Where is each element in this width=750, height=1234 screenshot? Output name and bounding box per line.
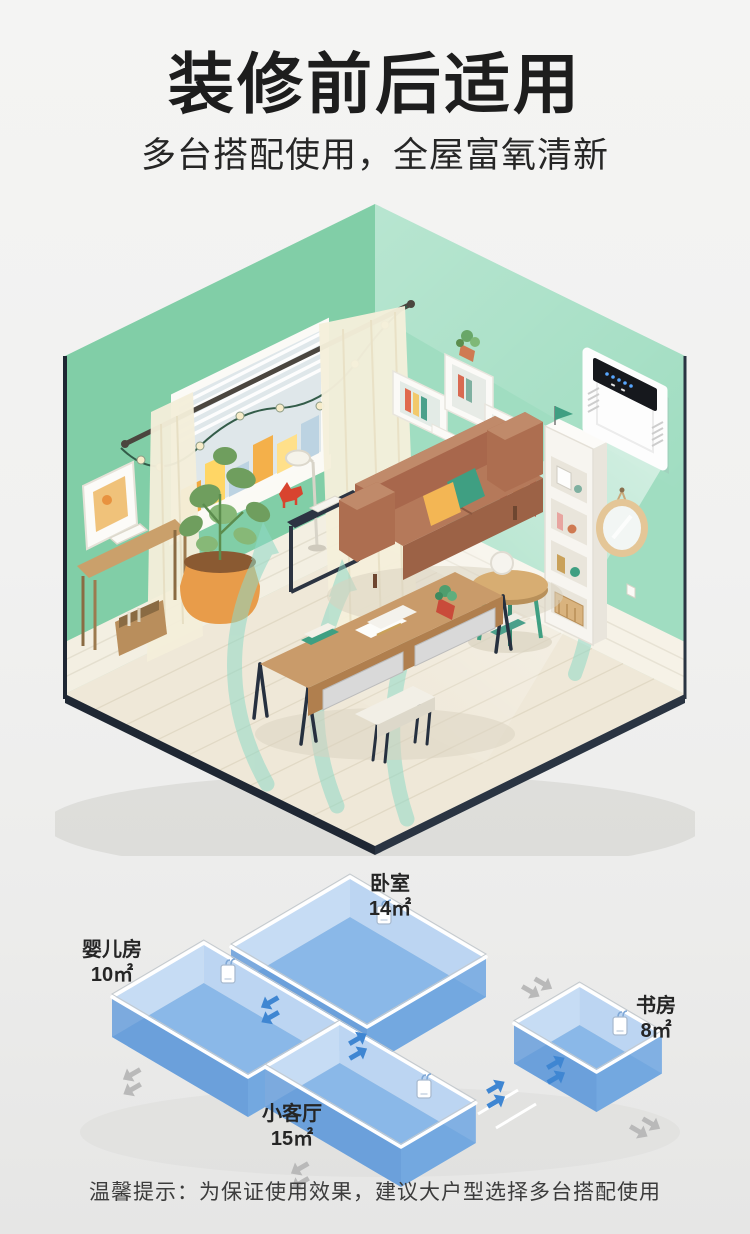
page-subtitle: 多台搭配使用，全屋富氧清新 — [0, 133, 750, 179]
footer-tip: 温馨提示：为保证使用效果，建议大户型选择多台搭配使用 — [0, 1176, 750, 1206]
room-label-living: 小客厅 15㎡ — [222, 1102, 362, 1152]
room-name: 小客厅 — [222, 1102, 362, 1127]
room-name: 婴儿房 — [42, 938, 182, 963]
marketing-page: 装修前后适用 多台搭配使用，全屋富氧清新 — [0, 0, 750, 1234]
page-title: 装修前后适用 — [0, 44, 750, 124]
room-label-nursery: 婴儿房 10㎡ — [42, 938, 182, 988]
living-room-illustration — [55, 194, 695, 856]
room-label-bedroom: 卧室 14㎡ — [320, 872, 460, 922]
room-area: 10㎡ — [42, 963, 182, 988]
room-name: 书房 — [586, 994, 726, 1019]
ball-lamp — [491, 552, 513, 574]
room-area: 14㎡ — [320, 897, 460, 922]
room-area: 8㎡ — [586, 1019, 726, 1044]
room-area: 15㎡ — [222, 1127, 362, 1152]
room-label-study: 书房 8㎡ — [586, 994, 726, 1044]
room-name: 卧室 — [320, 872, 460, 897]
